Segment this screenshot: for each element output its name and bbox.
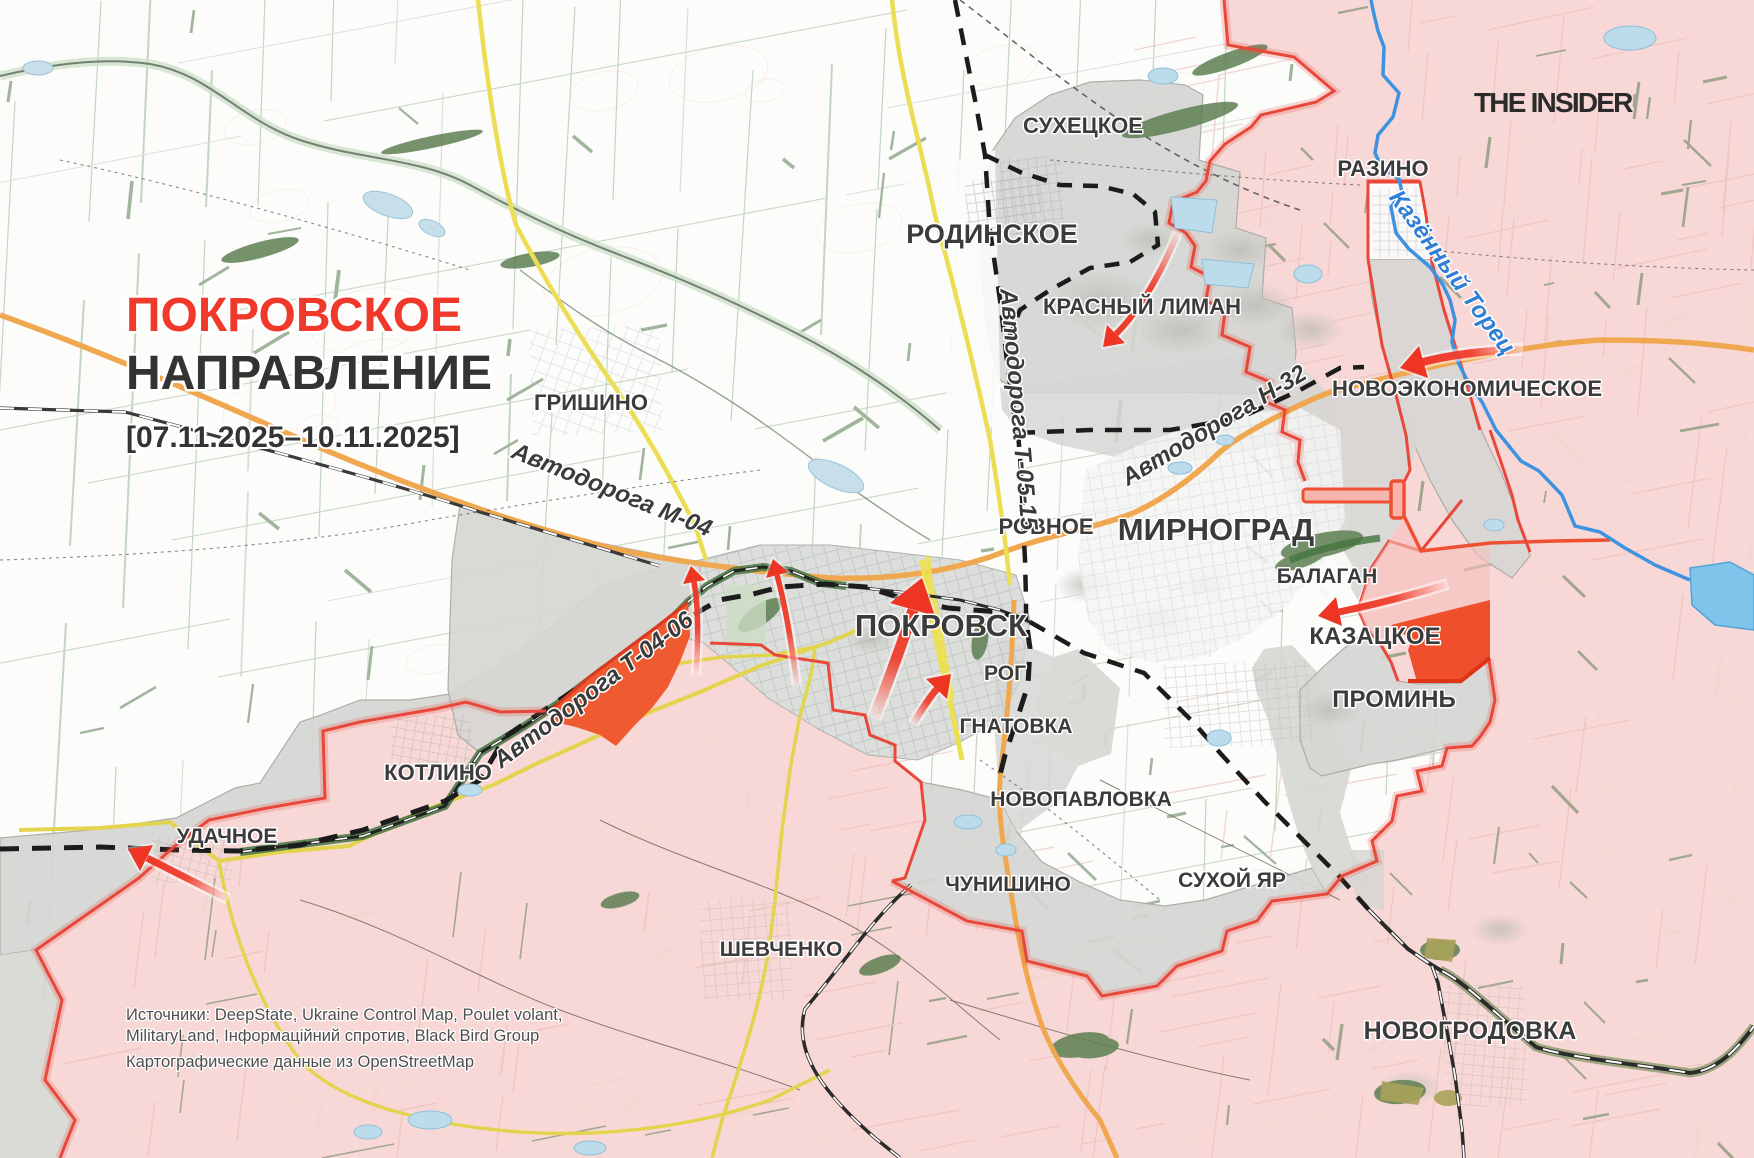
svg-text:УДАЧНОЕ: УДАЧНОЕ <box>177 825 278 848</box>
svg-text:THE INSIDER: THE INSIDER <box>1474 87 1633 118</box>
svg-text:ГРИШИНО: ГРИШИНО <box>534 390 648 415</box>
svg-text:Картографические данные из Ope: Картографические данные из OpenStreetMap <box>126 1053 474 1071</box>
svg-text:РАЗИНО: РАЗИНО <box>1337 156 1428 181</box>
svg-text:РОВНОЕ: РОВНОЕ <box>998 514 1093 539</box>
svg-text:ПРОМИНЬ: ПРОМИНЬ <box>1332 686 1455 713</box>
svg-text:КОТЛИНО: КОТЛИНО <box>384 760 492 785</box>
svg-text:РОГ: РОГ <box>984 662 1026 685</box>
svg-text:ЧУНИШИНО: ЧУНИШИНО <box>945 873 1071 896</box>
svg-text:СУХЕЦКОЕ: СУХЕЦКОЕ <box>1023 113 1143 138</box>
svg-text:БАЛАГАН: БАЛАГАН <box>1277 565 1378 588</box>
svg-text:КАЗАЦКОЕ: КАЗАЦКОЕ <box>1309 623 1440 650</box>
svg-text:ШЕВЧЕНКО: ШЕВЧЕНКО <box>720 938 843 961</box>
svg-text:ПОКРОВСК: ПОКРОВСК <box>855 608 1027 643</box>
svg-text:НОВОГРОДОВКА: НОВОГРОДОВКА <box>1364 1017 1577 1045</box>
svg-text:MilitaryLand, Інформаційний сп: MilitaryLand, Інформаційний спротив, Bla… <box>126 1027 539 1045</box>
svg-text:Источники: DeepState, Ukraine: Источники: DeepState, Ukraine Control Ma… <box>126 1006 562 1024</box>
svg-text:НОВОПАВЛОВКА: НОВОПАВЛОВКА <box>990 788 1172 811</box>
svg-text:СУХОЙ ЯР: СУХОЙ ЯР <box>1178 868 1286 892</box>
svg-text:МИРНОГРАД: МИРНОГРАД <box>1118 512 1314 547</box>
svg-text:КРАСНЫЙ ЛИМАН: КРАСНЫЙ ЛИМАН <box>1043 294 1241 319</box>
svg-text:ПОКРОВСКОЕ: ПОКРОВСКОЕ <box>126 289 462 342</box>
svg-text:НАПРАВЛЕНИЕ: НАПРАВЛЕНИЕ <box>126 347 492 400</box>
svg-text:ГНАТОВКА: ГНАТОВКА <box>960 715 1073 738</box>
svg-text:[07.11.2025–10.11.2025]: [07.11.2025–10.11.2025] <box>126 421 460 454</box>
svg-text:РОДИНСКОЕ: РОДИНСКОЕ <box>906 219 1077 249</box>
svg-text:НОВОЭКОНОМИЧЕСКОЕ: НОВОЭКОНОМИЧЕСКОЕ <box>1332 376 1602 401</box>
